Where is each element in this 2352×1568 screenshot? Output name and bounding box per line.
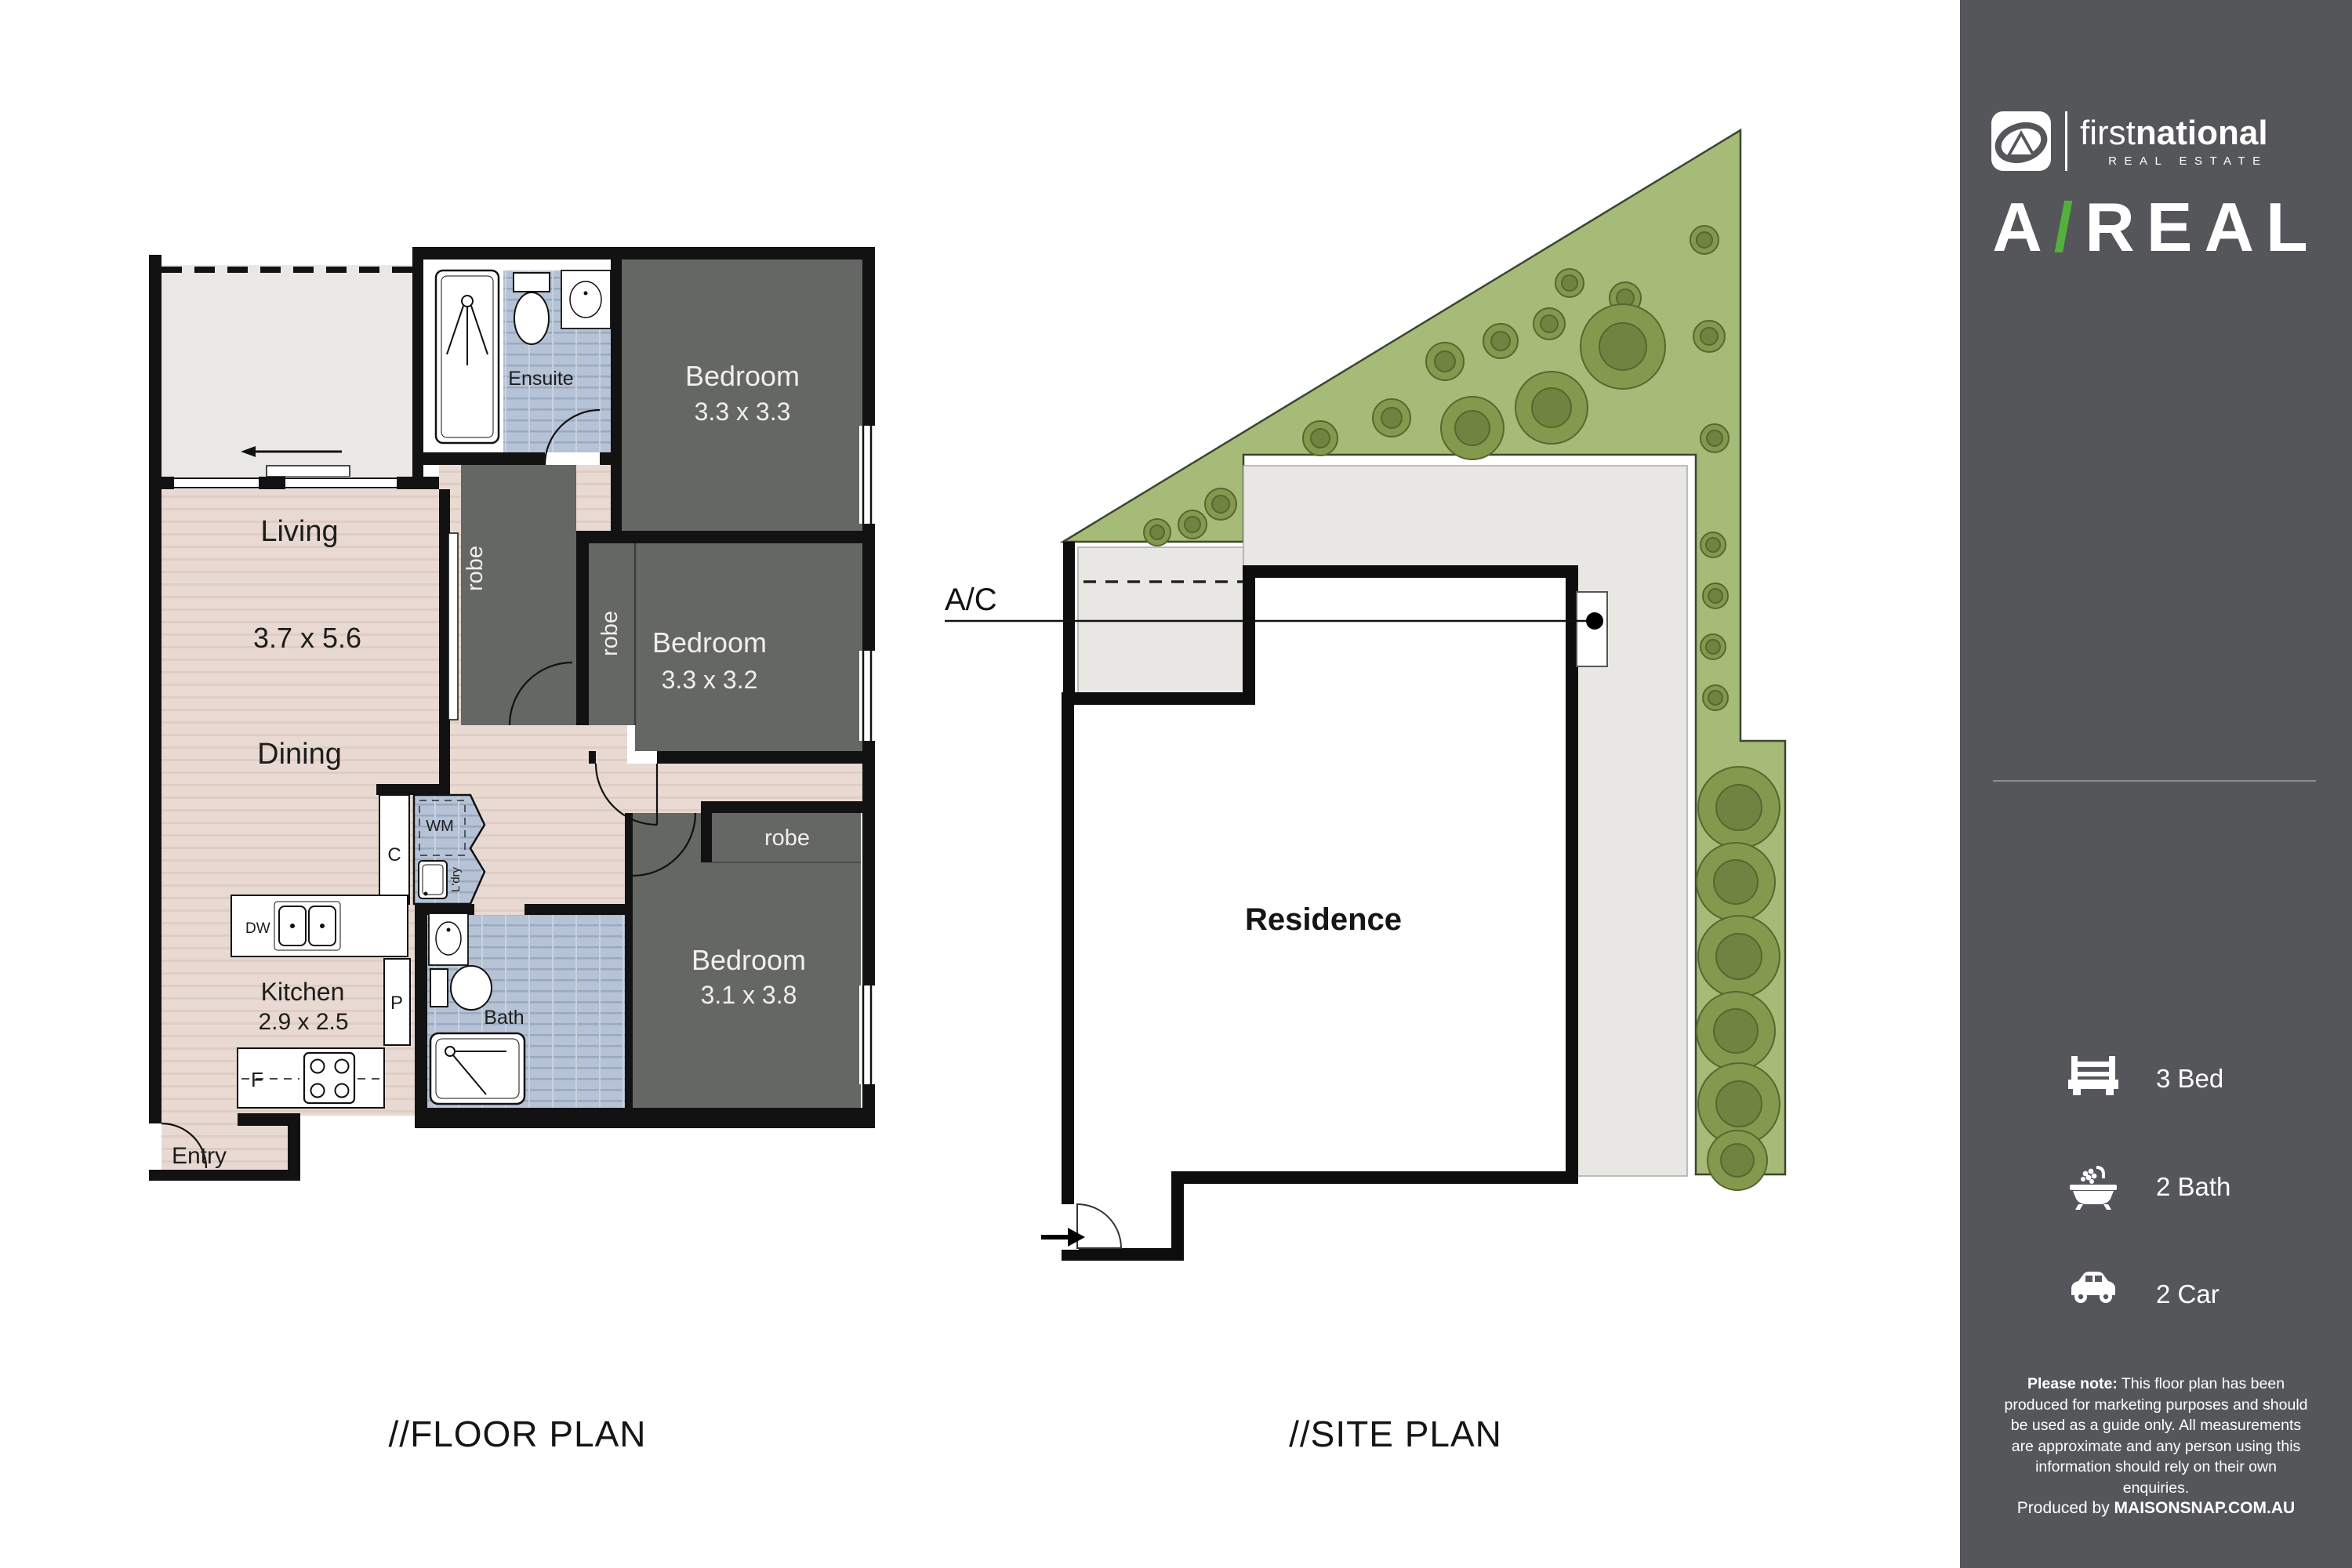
stat-bed: 3 Bed [1960,1054,2352,1106]
bedroom3-dims: 3.1 x 3.8 [701,981,797,1009]
car-icon [2068,1270,2118,1320]
bedroom3-label: Bedroom [691,944,806,976]
floor-plan-title: //FLOOR PLAN [389,1413,647,1455]
ac-marker-dot [1586,612,1603,630]
stat-car: 2 Car [1960,1270,2352,1322]
robe1-label: robe [463,546,488,591]
ensuite-label: Ensuite [508,368,573,390]
ldry-label: L'dry [449,866,463,892]
bedroom2-dims: 3.3 x 3.2 [662,666,758,694]
entry-label: Entry [172,1143,227,1169]
living-window-band [162,477,439,489]
brand-tagline: REAL ESTATE [2080,155,2268,167]
logo-divider [2065,111,2067,171]
courtyard-wall [1063,542,1075,704]
paving-left [1078,547,1243,699]
kitchen-label: Kitchen [261,978,345,1006]
robe1-door [448,533,458,720]
c-label: C [387,844,401,866]
robe2-label: robe [597,611,622,656]
robe3-label: robe [764,826,810,851]
living-label: Living [260,515,338,548]
wm-label: WM [426,818,454,835]
disclaimer-text: Please note: This floor plan has been pr… [2001,1374,2311,1498]
stat-bath: 2 Bath [1960,1163,2352,1214]
bedroom2-window [859,651,878,741]
brand-name: firstnational [2080,114,2268,152]
first-national-logo: firstnational REAL ESTATE [1990,110,2327,172]
bath-basin [429,913,468,965]
page: Living 3.7 x 5.6 Dining Kitchen 2.9 x 2.… [0,0,2352,1568]
bedroom3-window [859,985,878,1084]
f-label: F [251,1068,263,1091]
sidebar: firstnational REAL ESTATE A/REAL 3 Bed [1960,0,2352,1568]
ensuite-basin [561,270,611,328]
bath-shower [430,1033,524,1104]
bedroom1-window [859,426,878,524]
residence-label: Residence [1245,902,1402,937]
bedroom1-floor [622,260,862,531]
floor-plan: Living 3.7 x 5.6 Dining Kitchen 2.9 x 2.… [118,235,925,1223]
ac-label: A/C [945,583,997,617]
ensuite-shower [436,270,499,443]
bedroom1-dims: 3.3 x 3.3 [695,397,791,426]
bedroom1-label: Bedroom [685,360,800,392]
bedroom2-label: Bedroom [652,626,767,659]
produced-by: Produced by MAISONSNAP.COM.AU [1976,1499,2336,1518]
green-slash-icon: / [2054,188,2085,266]
bath-toilet [430,966,492,1010]
dw-label: DW [245,920,270,937]
bed-icon [2068,1054,2118,1105]
site-plan-title: //SITE PLAN [1289,1413,1502,1455]
site-plan: A/C Residence [902,118,1819,1286]
bath-icon [2068,1163,2118,1213]
ensuite-toilet [514,273,550,344]
dining-label: Dining [257,738,342,771]
areal-logo: A/REAL [1960,193,2352,262]
balcony-floor [158,265,412,477]
first-national-icon [1990,110,2053,172]
bath-label: Bath [484,1007,524,1029]
p-label: P [390,993,403,1014]
sidebar-divider [1993,780,2316,782]
living-dims: 3.7 x 5.6 [253,622,361,654]
ac-unit [1577,592,1607,666]
kitchen-dims: 2.9 x 2.5 [258,1009,348,1035]
robe1-floor [461,465,576,725]
